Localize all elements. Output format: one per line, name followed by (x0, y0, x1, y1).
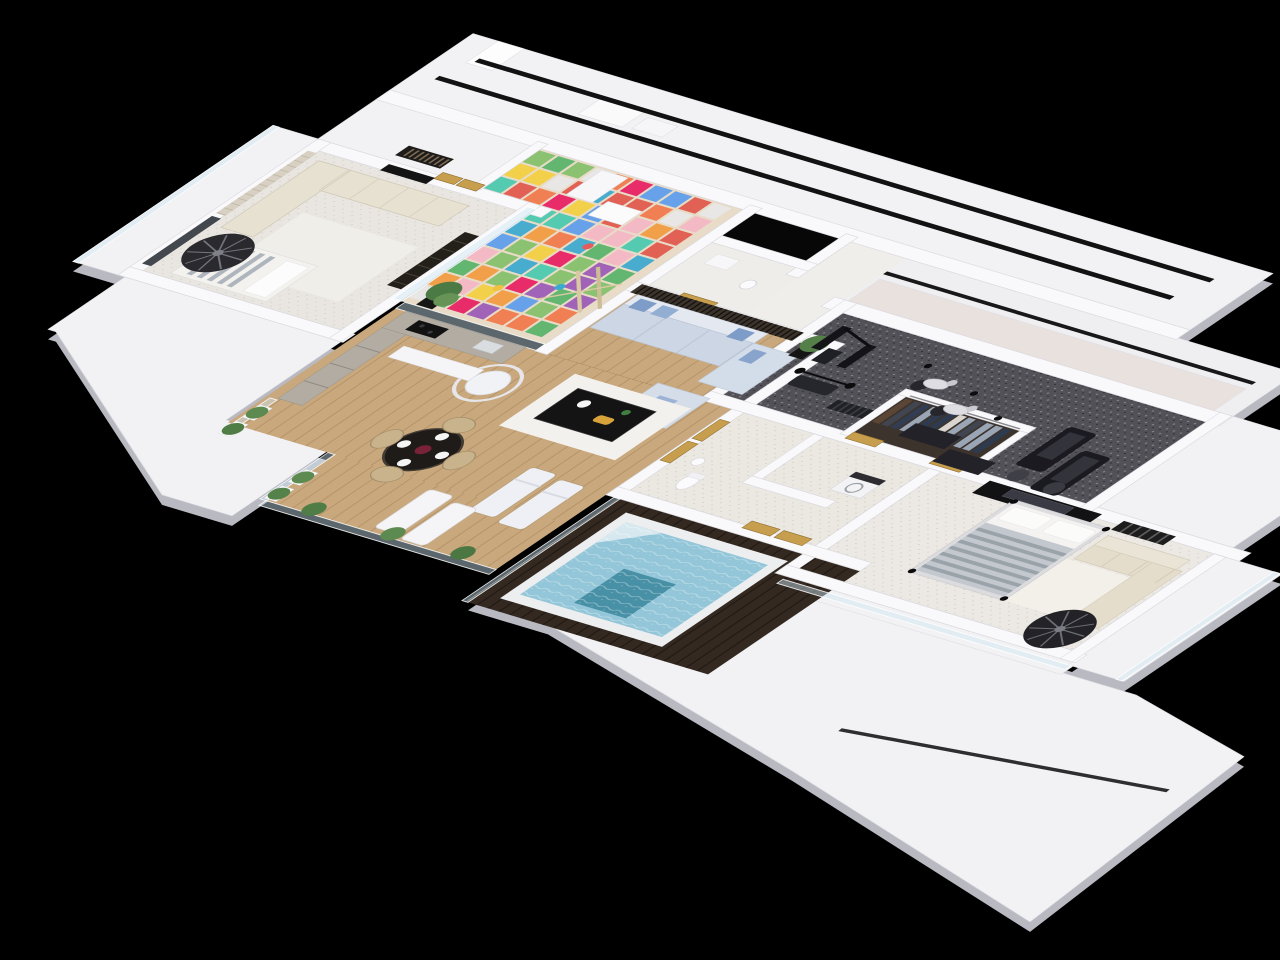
floorplan-3d-render (0, 0, 1280, 960)
floorplan-svg (0, 0, 1280, 960)
